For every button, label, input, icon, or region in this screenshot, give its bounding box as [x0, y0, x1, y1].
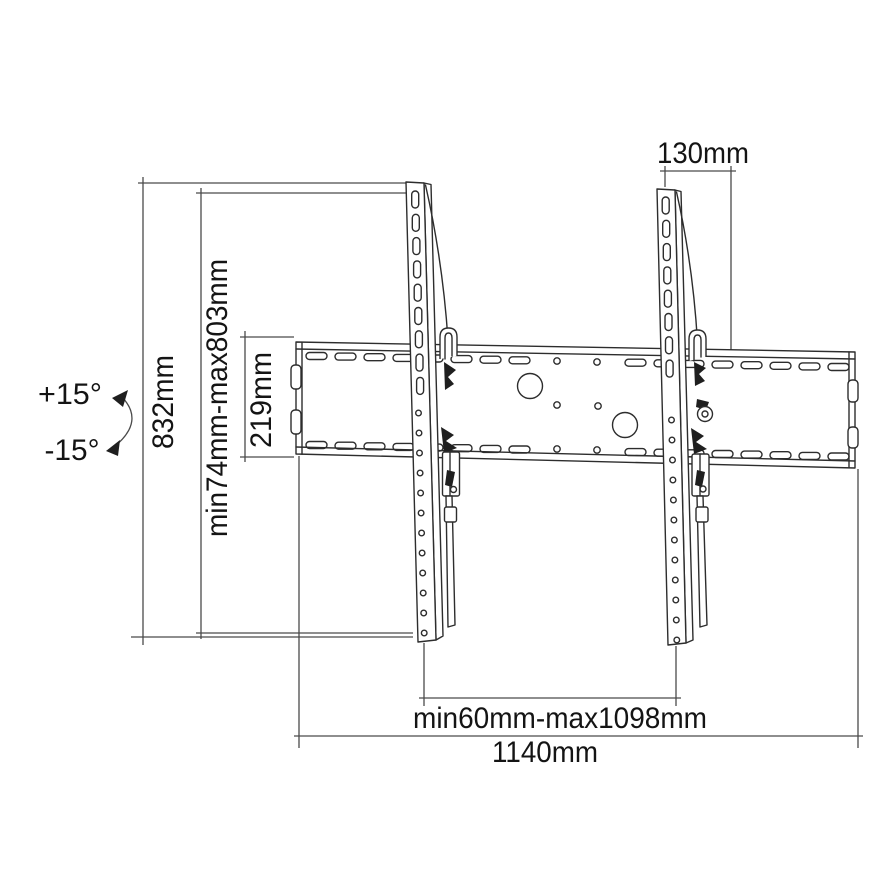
label-total-width: 1140mm — [492, 736, 598, 769]
tilt-knob — [698, 407, 713, 422]
label-plate-height: 219mm — [245, 352, 278, 448]
label-width-range: min60mm-max1098mm — [413, 702, 707, 735]
label-tilt-down: -15° — [45, 434, 100, 467]
tv-mount-dimension-diagram: +15° -15° 832mm min74mm-max803mm 219mm 1… — [0, 0, 884, 884]
wall-plate — [291, 342, 858, 468]
dimension-diagram-page: +15° -15° 832mm min74mm-max803mm 219mm 1… — [0, 0, 884, 884]
plate-right-tab — [848, 380, 858, 402]
right-bracket-strut-cap — [696, 507, 708, 522]
plate-left-tab — [291, 365, 301, 389]
label-total-height: 832mm — [147, 355, 180, 449]
left-bracket-strut-cap — [445, 507, 457, 522]
tilt-arrow-bottom-icon — [106, 440, 120, 456]
label-top-offset: 130mm — [657, 137, 749, 170]
plate-left-tab — [291, 410, 301, 434]
right-tv-bracket — [657, 189, 713, 645]
plate-right-tab — [848, 427, 858, 448]
label-height-range: min74mm-max803mm — [201, 259, 234, 537]
tilt-arrow-top-icon — [112, 390, 128, 407]
label-tilt-up: +15° — [38, 378, 102, 411]
